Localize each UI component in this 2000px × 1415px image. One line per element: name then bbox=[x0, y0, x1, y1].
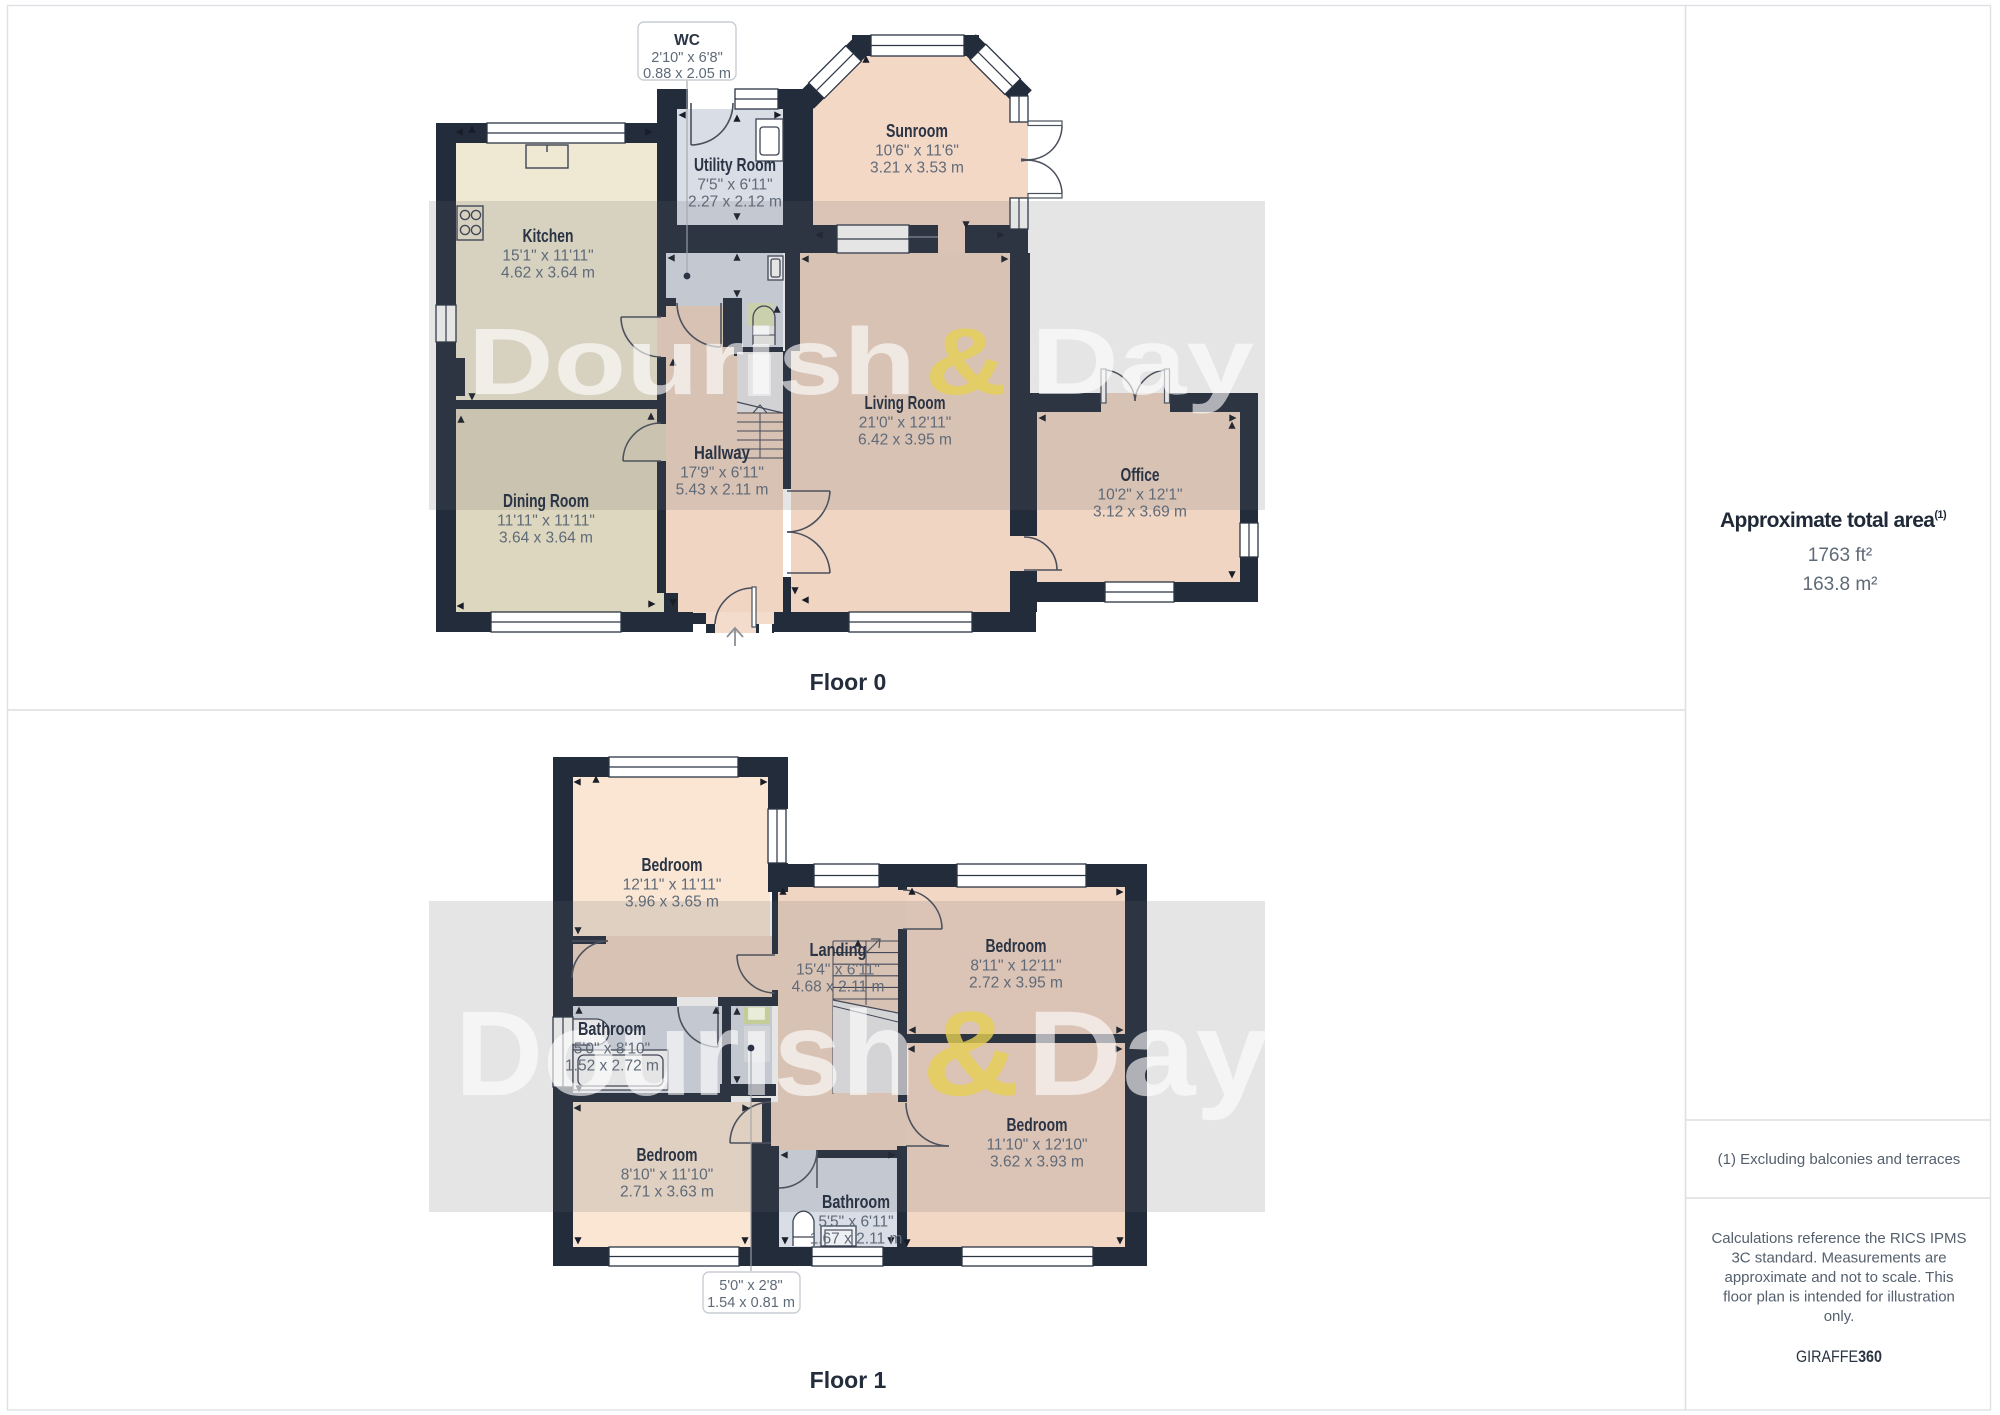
svg-text:Approximate total area(1): Approximate total area(1) bbox=[1720, 509, 1947, 532]
svg-text:3.62 x 3.93 m: 3.62 x 3.93 m bbox=[990, 1154, 1084, 1171]
svg-text:5'0" x 2'8": 5'0" x 2'8" bbox=[719, 1278, 782, 1294]
svg-text:Calculations reference the RIC: Calculations reference the RICS IPMS bbox=[1711, 1230, 1966, 1247]
svg-text:17'9" x 6'11": 17'9" x 6'11" bbox=[680, 465, 764, 482]
svg-text:5.43 x 2.11 m: 5.43 x 2.11 m bbox=[676, 482, 769, 499]
svg-text:15'1" x 11'11": 15'1" x 11'11" bbox=[502, 248, 593, 265]
svg-text:5'5" x 6'11": 5'5" x 6'11" bbox=[818, 1214, 893, 1231]
svg-text:0.88 x 2.05 m: 0.88 x 2.05 m bbox=[643, 66, 731, 82]
svg-text:only.: only. bbox=[1824, 1308, 1855, 1325]
svg-text:11'11" x 11'11": 11'11" x 11'11" bbox=[497, 513, 595, 530]
svg-text:10'6" x 11'6": 10'6" x 11'6" bbox=[875, 143, 959, 160]
svg-text:approximate and not to scale.: approximate and not to scale. This bbox=[1724, 1269, 1953, 1286]
svg-text:Dining Room: Dining Room bbox=[503, 491, 589, 511]
svg-text:Bedroom: Bedroom bbox=[642, 855, 703, 875]
svg-text:2.71 x 3.63 m: 2.71 x 3.63 m bbox=[620, 1184, 714, 1201]
svg-text:Kitchen: Kitchen bbox=[523, 226, 574, 246]
svg-text:11'10" x 12'10": 11'10" x 12'10" bbox=[986, 1137, 1087, 1154]
svg-text:5'0" x 8'10": 5'0" x 8'10" bbox=[574, 1041, 650, 1058]
svg-text:21'0" x 12'11": 21'0" x 12'11" bbox=[859, 415, 951, 432]
svg-text:Bathroom: Bathroom bbox=[822, 1192, 890, 1212]
svg-text:1763 ft²: 1763 ft² bbox=[1808, 545, 1872, 566]
svg-text:Day: Day bbox=[1031, 309, 1254, 415]
svg-text:Hallway: Hallway bbox=[694, 443, 750, 463]
svg-text:4.62 x 3.64 m: 4.62 x 3.64 m bbox=[501, 265, 595, 282]
svg-text:1.54 x 0.81 m: 1.54 x 0.81 m bbox=[707, 1295, 795, 1311]
svg-text:7'5" x 6'11": 7'5" x 6'11" bbox=[697, 177, 772, 194]
svg-text:3.12 x 3.69 m: 3.12 x 3.69 m bbox=[1093, 504, 1187, 521]
svg-text:Dourish: Dourish bbox=[468, 309, 916, 415]
svg-text:8'10" x 11'10": 8'10" x 11'10" bbox=[621, 1167, 713, 1184]
svg-text:3.21 x 3.53 m: 3.21 x 3.53 m bbox=[870, 160, 964, 177]
svg-text:8'11" x 12'11": 8'11" x 12'11" bbox=[970, 958, 1061, 975]
svg-text:Dourish: Dourish bbox=[455, 985, 916, 1121]
svg-text:10'2" x 12'1": 10'2" x 12'1" bbox=[1097, 487, 1182, 504]
svg-text:2.27 x 2.12 m: 2.27 x 2.12 m bbox=[688, 194, 782, 211]
svg-text:6.42 x 3.95 m: 6.42 x 3.95 m bbox=[858, 432, 952, 449]
svg-text:2.72 x 3.95 m: 2.72 x 3.95 m bbox=[969, 975, 1063, 992]
svg-text:12'11" x 11'11": 12'11" x 11'11" bbox=[623, 877, 722, 894]
svg-text:(1) Excluding balconies and te: (1) Excluding balconies and terraces bbox=[1718, 1151, 1961, 1168]
svg-text:4.68 x 2.11 m: 4.68 x 2.11 m bbox=[792, 979, 885, 996]
svg-text:&: & bbox=[922, 985, 1020, 1121]
svg-text:GIRAFFE360: GIRAFFE360 bbox=[1796, 1348, 1882, 1366]
svg-text:Bedroom: Bedroom bbox=[1007, 1115, 1068, 1135]
svg-text:floor plan is intended for ill: floor plan is intended for illustration bbox=[1723, 1289, 1955, 1306]
svg-text:3.64 x 3.64 m: 3.64 x 3.64 m bbox=[499, 530, 593, 547]
svg-text:WC: WC bbox=[674, 32, 700, 49]
svg-text:1.67 x 2.11 m: 1.67 x 2.11 m bbox=[810, 1231, 903, 1248]
svg-text:3C standard. Measurements are: 3C standard. Measurements are bbox=[1731, 1250, 1946, 1267]
svg-text:Floor 1: Floor 1 bbox=[810, 1367, 887, 1393]
svg-text:Day: Day bbox=[1027, 985, 1269, 1121]
svg-text:Bedroom: Bedroom bbox=[637, 1145, 698, 1165]
svg-text:1.52 x 2.72 m: 1.52 x 2.72 m bbox=[565, 1058, 659, 1075]
svg-text:Sunroom: Sunroom bbox=[886, 121, 948, 141]
svg-text:15'4" x 6'11": 15'4" x 6'11" bbox=[796, 962, 880, 979]
svg-text:3.96 x 3.65 m: 3.96 x 3.65 m bbox=[625, 894, 719, 911]
svg-text:Floor 0: Floor 0 bbox=[810, 669, 887, 695]
svg-text:Bedroom: Bedroom bbox=[986, 936, 1047, 956]
svg-text:Utility Room: Utility Room bbox=[694, 155, 776, 175]
svg-text:Landing: Landing bbox=[810, 940, 867, 960]
svg-text:163.8 m²: 163.8 m² bbox=[1803, 574, 1878, 595]
svg-text:Bathroom: Bathroom bbox=[578, 1019, 646, 1039]
svg-text:Office: Office bbox=[1121, 465, 1160, 485]
svg-text:2'10" x 6'8": 2'10" x 6'8" bbox=[651, 50, 722, 66]
svg-text:Living Room: Living Room bbox=[865, 393, 946, 413]
